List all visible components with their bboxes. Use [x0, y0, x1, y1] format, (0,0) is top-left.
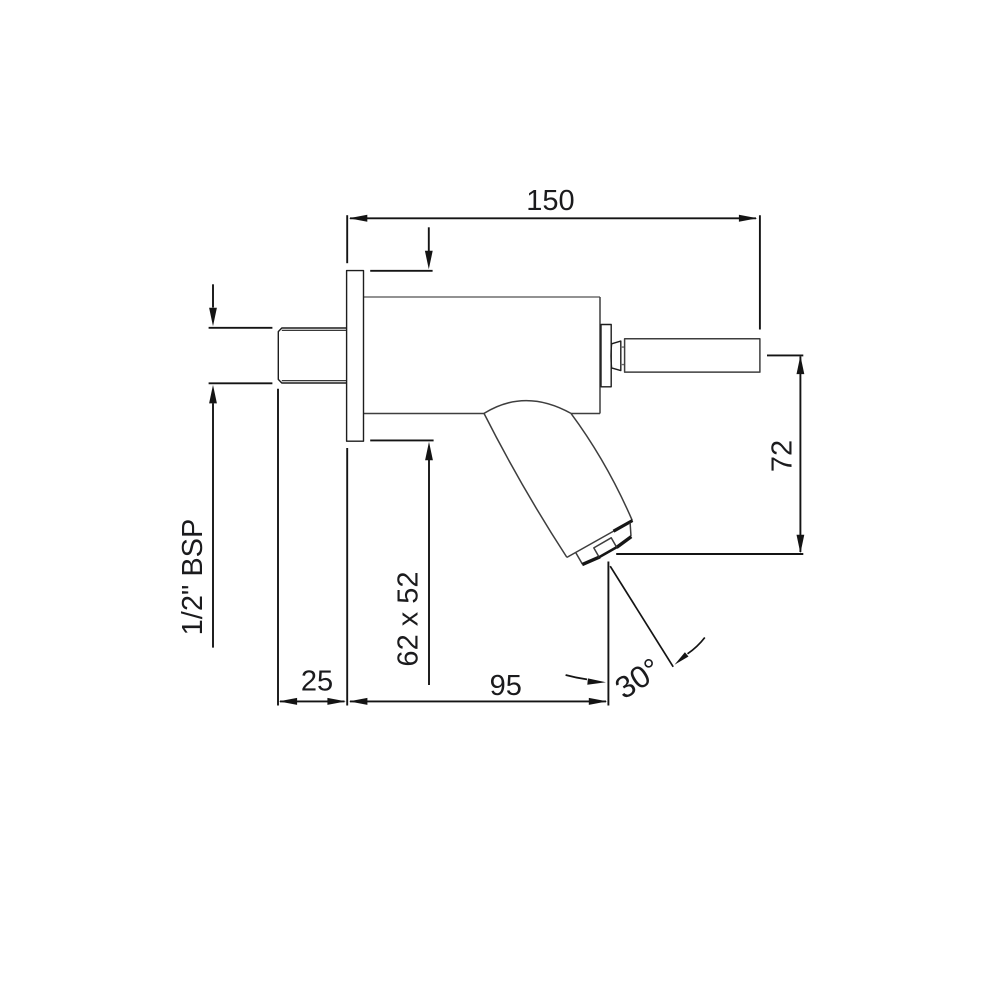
- svg-text:62 x 52: 62 x 52: [393, 571, 425, 666]
- svg-text:95: 95: [490, 670, 522, 702]
- svg-text:1/2" BSP: 1/2" BSP: [177, 519, 209, 636]
- svg-text:72: 72: [767, 440, 799, 472]
- svg-text:25: 25: [301, 666, 333, 698]
- svg-text:150: 150: [526, 185, 574, 217]
